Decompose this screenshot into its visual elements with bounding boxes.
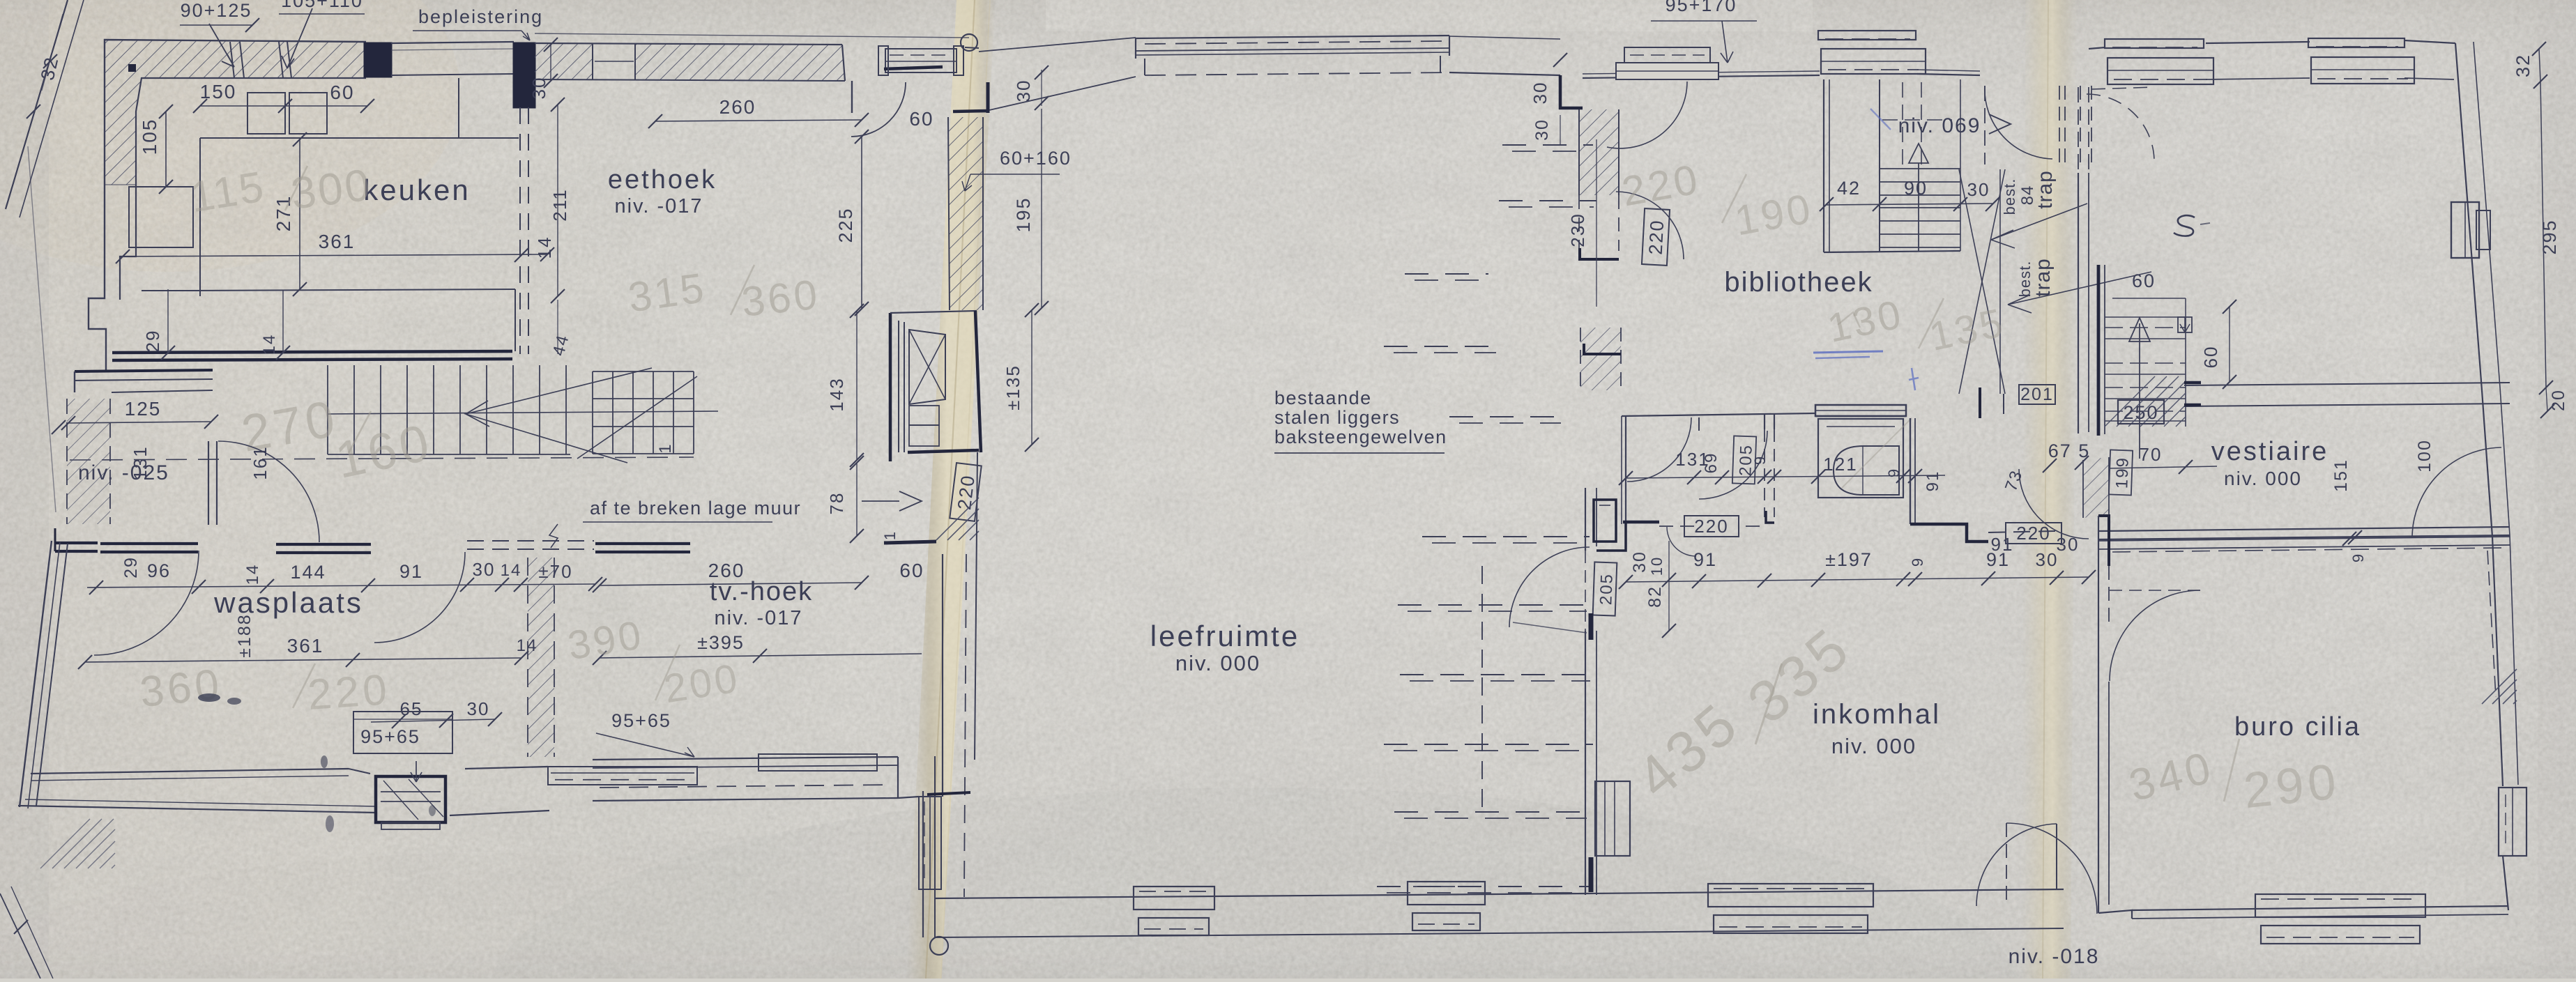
svg-text:361: 361 (319, 231, 356, 252)
svg-text:91: 91 (1693, 549, 1717, 570)
svg-text:best.: best. (2001, 178, 2018, 215)
svg-text:32: 32 (2513, 54, 2533, 77)
svg-text:buro cilia: buro cilia (2234, 712, 2361, 742)
svg-text:niv. 069: niv. 069 (1898, 114, 1981, 137)
svg-text:30: 30 (528, 77, 549, 100)
svg-text:±188: ±188 (235, 613, 254, 657)
svg-text:tv.-hoek: tv.-hoek (710, 577, 813, 606)
svg-text:220: 220 (2016, 523, 2050, 544)
svg-text:150: 150 (200, 81, 237, 102)
svg-text:29: 29 (121, 556, 141, 578)
svg-text:121: 121 (1823, 454, 1857, 475)
svg-text:220: 220 (954, 473, 979, 511)
svg-text:30: 30 (1013, 79, 1034, 102)
svg-text:95+65: 95+65 (611, 710, 671, 731)
svg-text:niv. -018: niv. -018 (2009, 945, 2100, 968)
svg-text:195: 195 (1013, 197, 1034, 232)
svg-text:125: 125 (125, 398, 162, 420)
svg-text:9: 9 (1885, 468, 1903, 477)
svg-text:eethoek: eethoek (608, 165, 717, 194)
svg-text:29: 29 (142, 330, 163, 353)
svg-text:95+65: 95+65 (360, 726, 420, 747)
svg-text:9: 9 (2349, 553, 2367, 562)
svg-text:30: 30 (467, 698, 490, 719)
svg-text:bestaande: bestaande (1274, 388, 1372, 408)
svg-text:91: 91 (1923, 470, 1942, 492)
svg-text:9: 9 (1751, 455, 1769, 465)
svg-text:30: 30 (1530, 82, 1550, 105)
svg-text:361: 361 (287, 635, 324, 657)
svg-text:niv. -017: niv. -017 (714, 607, 802, 629)
svg-text:1: 1 (656, 443, 675, 453)
svg-text:220: 220 (1645, 219, 1668, 256)
svg-text:70: 70 (2140, 444, 2163, 465)
svg-text:250: 250 (2123, 402, 2158, 423)
svg-text:65: 65 (400, 698, 423, 719)
svg-text:niv. 000: niv. 000 (1831, 734, 1916, 758)
svg-text:90: 90 (1904, 178, 1928, 199)
svg-text:niv. -017: niv. -017 (614, 195, 703, 217)
svg-text:201: 201 (2020, 385, 2054, 404)
svg-text:bibliotheek: bibliotheek (1724, 267, 1873, 298)
svg-text:100: 100 (2415, 439, 2434, 473)
svg-text:baksteengewelven: baksteengewelven (1274, 427, 1447, 447)
svg-text:105: 105 (139, 118, 160, 155)
svg-text:60: 60 (2200, 346, 2221, 369)
svg-text:14: 14 (517, 636, 538, 655)
svg-text:300: 300 (288, 159, 374, 219)
svg-text:82: 82 (1645, 585, 1665, 608)
svg-text:30: 30 (1532, 118, 1552, 141)
svg-text:10: 10 (1648, 556, 1666, 576)
svg-text:niv. -025: niv. -025 (78, 461, 169, 484)
svg-text:niv. 000: niv. 000 (2224, 468, 2302, 489)
svg-text:199: 199 (2112, 457, 2133, 489)
svg-text:144: 144 (290, 562, 326, 583)
svg-text:±395: ±395 (697, 632, 745, 653)
svg-text:91: 91 (1991, 534, 2014, 555)
svg-text:±197: ±197 (1825, 549, 1873, 570)
svg-text:225: 225 (835, 207, 856, 243)
svg-text:30: 30 (2057, 534, 2080, 555)
svg-text:220: 220 (1694, 516, 1728, 537)
svg-text:295: 295 (2539, 219, 2560, 254)
svg-text:14: 14 (260, 334, 279, 355)
svg-text:143: 143 (826, 377, 847, 411)
svg-text:keuken: keuken (363, 174, 470, 206)
svg-text:±135: ±135 (1003, 365, 1023, 411)
svg-text:30: 30 (1630, 551, 1649, 573)
svg-text:9: 9 (1909, 557, 1926, 567)
svg-text:60: 60 (330, 82, 354, 103)
svg-text:290: 290 (2241, 753, 2343, 819)
svg-text:trap: trap (2034, 170, 2057, 209)
svg-text:67 5: 67 5 (2048, 440, 2091, 461)
svg-text:af te breken lage muur: af te breken lage muur (590, 498, 801, 519)
svg-text:260: 260 (719, 96, 756, 118)
svg-text:91: 91 (399, 561, 423, 582)
svg-text:260: 260 (708, 560, 745, 581)
svg-text:96: 96 (147, 560, 171, 581)
svg-text:stalen liggers: stalen liggers (1274, 407, 1400, 428)
svg-text:leefruimte: leefruimte (1150, 620, 1300, 652)
svg-text:360: 360 (137, 660, 224, 716)
svg-text:20: 20 (2549, 389, 2568, 411)
svg-text:95+170: 95+170 (1666, 0, 1737, 15)
svg-text:30: 30 (473, 559, 496, 580)
svg-text:69: 69 (1702, 452, 1721, 474)
svg-text:trap: trap (2032, 258, 2055, 297)
svg-text:60: 60 (899, 560, 924, 581)
svg-text:151: 151 (2331, 459, 2351, 492)
svg-text:60: 60 (909, 108, 933, 130)
svg-text:30: 30 (1967, 179, 1990, 200)
svg-text:14: 14 (534, 236, 555, 259)
svg-text:vestiaire: vestiaire (2211, 437, 2329, 466)
svg-text:42: 42 (1837, 178, 1861, 199)
svg-text:230: 230 (1567, 213, 1588, 247)
svg-text:360: 360 (740, 270, 822, 325)
svg-text:78: 78 (826, 492, 847, 515)
svg-text:90+125: 90+125 (181, 0, 252, 21)
svg-text:wasplaats: wasplaats (213, 586, 363, 619)
svg-text:211: 211 (549, 188, 570, 221)
svg-text:niv. 000: niv. 000 (1175, 651, 1260, 675)
svg-text:1: 1 (881, 530, 899, 540)
svg-text:60: 60 (2132, 270, 2156, 291)
svg-text:220: 220 (306, 666, 392, 719)
svg-text:105+110: 105+110 (281, 0, 363, 11)
svg-text:30: 30 (2036, 549, 2059, 570)
svg-text:bepleistering: bepleistering (418, 6, 543, 27)
svg-text:±70: ±70 (538, 561, 572, 582)
svg-text:205: 205 (1596, 573, 1617, 606)
svg-text:inkomhal: inkomhal (1813, 699, 1941, 730)
svg-text:14: 14 (243, 564, 262, 585)
svg-text:14: 14 (501, 561, 522, 580)
svg-text:60+160: 60+160 (1000, 148, 1072, 169)
